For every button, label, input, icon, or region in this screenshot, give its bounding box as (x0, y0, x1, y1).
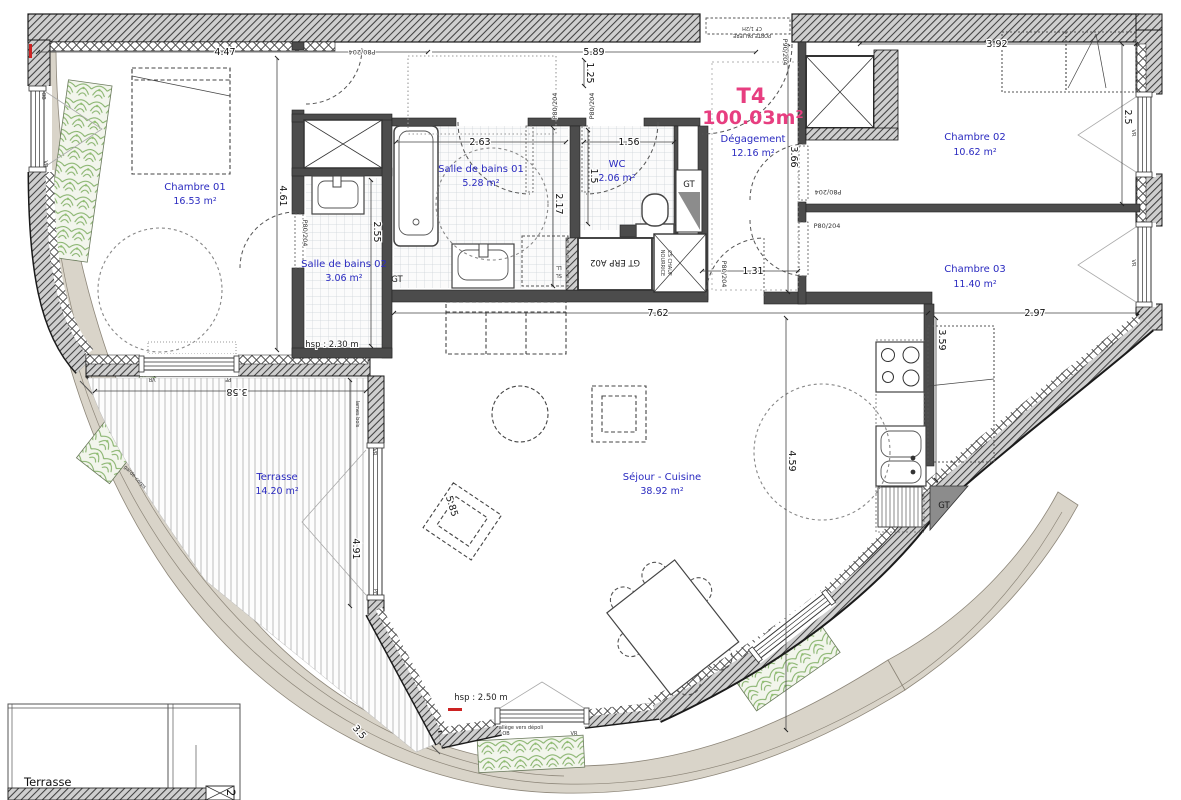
dimension: 1.56 (618, 137, 639, 148)
nourrice-label: NOURRICE (659, 250, 665, 276)
bathtub (394, 126, 438, 246)
dishwasher (878, 487, 922, 527)
window-chambre01-terrasse (139, 354, 239, 376)
dimension: 1.31 (742, 266, 763, 277)
unit-area-label: 100.03m² (702, 107, 803, 129)
window-note: allège vers dépoli (499, 724, 543, 731)
dimension: 4.59 (786, 450, 797, 471)
room-area: 10.62 m² (953, 147, 996, 158)
floor-plan-page: T4 100.03m² Chambre 01 16.53 m² Salle de… (0, 0, 1181, 800)
room-label: Séjour - Cuisine (623, 471, 701, 483)
dimension: 2.63 (469, 137, 490, 148)
room-label: Salle de bains 01 (438, 164, 524, 175)
dimension: 3.59 (936, 329, 947, 350)
window-tag: VR (571, 731, 578, 737)
window-tag: OB (502, 731, 510, 737)
ceiling-height-label: hsp : 2.30 m (305, 340, 358, 350)
room-label: Terrasse (255, 472, 297, 483)
unit-type-label: T4 (737, 84, 766, 108)
dryer-label: SL (556, 272, 562, 278)
dimension: 4.91 (350, 538, 361, 559)
floor-plan-svg: T4 100.03m² Chambre 01 16.53 m² Salle de… (0, 0, 1181, 800)
window-tag: PF (225, 376, 231, 382)
dimension: 2.5 (1122, 109, 1133, 124)
room-label: Chambre 02 (944, 132, 1005, 143)
door-label: P80/204 (814, 222, 841, 230)
door-label: P90/204 (781, 39, 789, 66)
room-area: 14.20 m² (255, 486, 298, 497)
room-area: 2.06 m² (598, 173, 635, 184)
dimension: 2.17 (553, 193, 564, 214)
gt-erp-label: GT ERP A02 (590, 257, 640, 267)
window-tag: VR (148, 376, 155, 382)
kitchen-sink (876, 426, 926, 486)
door-label: P80/204 (301, 220, 309, 247)
window-tag: VR (42, 161, 48, 168)
nourrice-label: CS CHAUF (666, 250, 672, 276)
window-tag: VR (1130, 260, 1136, 267)
dimension: 4.61 (277, 185, 288, 206)
material-note: lames bois (354, 401, 360, 428)
dimension: 1.5 (588, 168, 599, 183)
dimension: 5.89 (583, 47, 604, 58)
dimension: 3.66 (788, 146, 799, 167)
dimension: 2.97 (1024, 308, 1045, 319)
window-tag: OB (40, 92, 46, 100)
window-tag: PF (372, 589, 378, 595)
dimension: 4.47 (214, 47, 235, 58)
adjacent-terrace-label: Terrasse (23, 775, 72, 789)
bed (132, 68, 230, 174)
room-area: 11.40 m² (953, 279, 996, 290)
door-label: P80/204 (720, 261, 728, 288)
room-label: Chambre 01 (164, 182, 225, 193)
gt-label: GT (938, 501, 950, 511)
room-area: 16.53 m² (173, 196, 216, 207)
dimension: 7.62 (647, 308, 668, 319)
gt-label: GT (683, 180, 695, 190)
room-area: 5.28 m² (462, 178, 499, 189)
window-tag: VR (1130, 130, 1136, 137)
adjacent-unit-number: 2 (224, 789, 238, 796)
planter (477, 735, 585, 773)
dimension: 2.55 (371, 221, 382, 242)
entrance-door-note: CF 1/2H (742, 25, 762, 31)
room-area: 38.92 m² (640, 486, 683, 497)
washer-label: LL (556, 264, 562, 270)
door-label: P80/204 (588, 93, 596, 120)
room-label: WC (609, 159, 626, 170)
dimension: 3.92 (986, 39, 1007, 50)
room-label: Dégagement (721, 133, 786, 145)
window-tag: VR (371, 449, 377, 456)
ceiling-height-label: hsp : 2.50 m (454, 693, 507, 703)
door-label: P80/204 (815, 188, 842, 196)
dimension: 1.25 (584, 62, 595, 83)
door-label: P80/204 (551, 93, 559, 120)
room-label: Salle de bains 02 (301, 259, 387, 270)
entrance-door-note: PORTE PALIERE (733, 32, 771, 38)
gt-label: GT (391, 275, 403, 285)
room-label: Chambre 03 (944, 264, 1005, 275)
room-area: 3.06 m² (325, 273, 362, 284)
dimension: 3.58 (226, 386, 247, 397)
door-label: P80/204 (349, 48, 376, 56)
room-area: 12.16 m² (731, 148, 774, 159)
